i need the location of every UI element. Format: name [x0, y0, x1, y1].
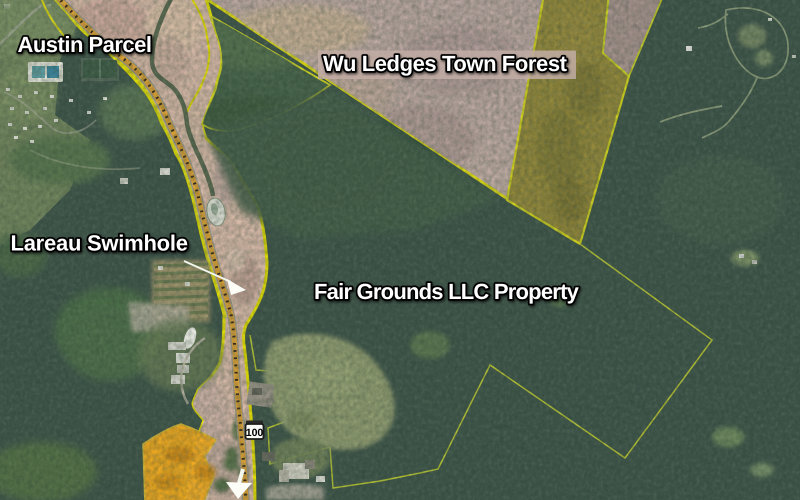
svg-text:Austin Parcel: Austin Parcel — [18, 32, 152, 57]
svg-text:Fair Grounds LLC Property: Fair Grounds LLC Property — [314, 279, 580, 304]
svg-text:Lareau Swimhole: Lareau Swimhole — [11, 231, 188, 256]
svg-text:Wu Ledges Town Forest: Wu Ledges Town Forest — [323, 51, 568, 76]
svg-text:100: 100 — [246, 427, 264, 439]
